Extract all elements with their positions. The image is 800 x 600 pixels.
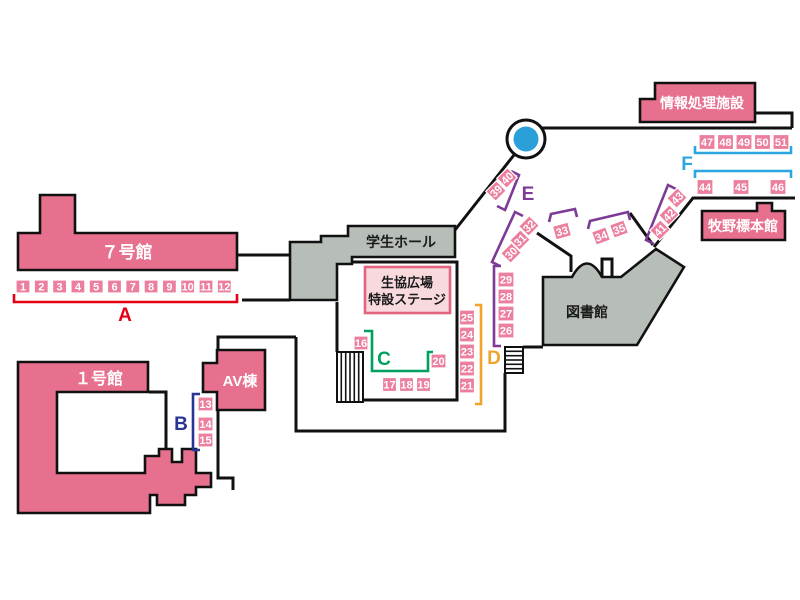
bracket-d — [475, 305, 481, 404]
coop-stage-label-1: 生協広場 — [381, 275, 433, 290]
booth-6: 6 — [108, 280, 122, 294]
group-label-a: A — [118, 305, 132, 326]
building-1-label: １号館 — [75, 369, 123, 388]
booth-16-number: 16 — [355, 338, 367, 350]
pond-icon — [514, 127, 539, 152]
booth-4: 4 — [71, 280, 85, 294]
bracket-a — [14, 294, 237, 302]
booth-51-number: 51 — [775, 137, 787, 149]
booth-24: 24 — [460, 327, 475, 342]
booth-6-number: 6 — [111, 282, 117, 294]
booth-10: 10 — [181, 280, 195, 294]
path-library-notch — [602, 259, 612, 277]
booth-3: 3 — [53, 280, 67, 294]
booth-29-number: 29 — [500, 275, 512, 287]
booth-27: 27 — [498, 306, 514, 321]
booth-48-number: 48 — [719, 137, 731, 149]
booth-11-number: 11 — [200, 282, 212, 294]
booth-23: 23 — [460, 344, 475, 359]
booth-33: 33 — [552, 222, 571, 240]
booth-7-number: 7 — [130, 282, 136, 294]
av-building-label: AV棟 — [223, 372, 259, 390]
booth-12-number: 12 — [218, 282, 230, 294]
booth-18-number: 18 — [400, 380, 412, 392]
booth-13: 13 — [198, 397, 213, 411]
booth-16: 16 — [354, 336, 368, 350]
booth-19-number: 19 — [417, 380, 429, 392]
booth-11: 11 — [199, 280, 213, 294]
booth-22: 22 — [460, 361, 475, 376]
booth-28: 28 — [498, 289, 514, 304]
booth-47-number: 47 — [701, 137, 713, 149]
booth-3-number: 3 — [57, 282, 63, 294]
booth-15: 15 — [198, 433, 213, 447]
booth-5-number: 5 — [93, 282, 99, 294]
booth-27-number: 27 — [500, 309, 512, 321]
bracket-f-44-46 — [695, 171, 791, 178]
booth-13-number: 13 — [199, 399, 211, 411]
booth-24-number: 24 — [461, 330, 474, 342]
booth-25-number: 25 — [461, 313, 473, 325]
group-label-b: B — [174, 414, 188, 435]
booth-17-number: 17 — [383, 380, 395, 392]
student-hall-label: 学生ホール — [366, 234, 436, 250]
campus-map-svg: ７号館 １号館 AV棟 学生ホール 図書館 情報処理施設 牧野標本館 生協広場 … — [0, 0, 800, 600]
booth-7: 7 — [126, 280, 140, 294]
booth-49-number: 49 — [738, 137, 750, 149]
booth-14-number: 14 — [199, 419, 212, 431]
library-label: 図書館 — [566, 304, 608, 320]
walkway-paths — [149, 113, 795, 490]
booth-8-number: 8 — [148, 282, 154, 294]
booth-17: 17 — [383, 378, 397, 392]
booth-28-number: 28 — [500, 292, 512, 304]
booth-2: 2 — [34, 280, 48, 294]
booth-1-number: 1 — [20, 282, 26, 294]
booth-25: 25 — [460, 310, 475, 325]
booth-23-number: 23 — [461, 347, 473, 359]
booth-26-number: 26 — [500, 326, 512, 338]
building-7-label: ７号館 — [102, 242, 153, 262]
booth-10-number: 10 — [182, 282, 194, 294]
booth-29: 29 — [498, 272, 514, 287]
booth-44: 44 — [697, 180, 713, 195]
group-label-f: F — [681, 154, 693, 175]
booth-46: 46 — [770, 180, 786, 195]
info-processing-label: 情報処理施設 — [660, 95, 745, 111]
pond-marker — [507, 120, 545, 158]
group-label-e: E — [522, 184, 535, 205]
booth-18: 18 — [400, 378, 414, 392]
booth-26: 26 — [498, 323, 514, 338]
booth-45: 45 — [733, 180, 749, 195]
coop-stage: 生協広場 特設ステージ — [365, 267, 450, 313]
makino-herbarium-label: 牧野標本館 — [708, 218, 778, 234]
path-library-entry-left — [537, 233, 571, 272]
booth-50: 50 — [755, 135, 771, 150]
path-av-top — [218, 337, 296, 350]
booth-2-number: 2 — [38, 282, 44, 294]
booth-49: 49 — [736, 135, 752, 150]
booth-9: 9 — [162, 280, 176, 294]
group-label-c: C — [377, 349, 391, 370]
booth-9-number: 9 — [166, 282, 172, 294]
booth-15-number: 15 — [199, 435, 211, 447]
booth-46-number: 46 — [772, 182, 784, 194]
booth-45-number: 45 — [735, 182, 747, 194]
booth-50-number: 50 — [756, 137, 768, 149]
booth-1: 1 — [16, 280, 30, 294]
booth-8: 8 — [144, 280, 158, 294]
booth-44-number: 44 — [699, 182, 712, 194]
booth-12: 12 — [217, 280, 231, 294]
booth-21-number: 21 — [461, 381, 473, 393]
booth-19: 19 — [417, 378, 431, 392]
group-label-d: D — [487, 348, 501, 369]
booth-47: 47 — [699, 135, 715, 150]
booth-20: 20 — [431, 354, 446, 368]
booth-21: 21 — [460, 378, 475, 393]
booth-4-number: 4 — [75, 282, 82, 294]
booth-48: 48 — [718, 135, 734, 150]
path-bldg1-step — [149, 392, 166, 455]
booth-22-number: 22 — [461, 364, 473, 376]
campus-map: ７号館 １号館 AV棟 学生ホール 図書館 情報処理施設 牧野標本館 生協広場 … — [0, 0, 800, 600]
booth-5: 5 — [89, 280, 103, 294]
path-av-bottom — [218, 410, 233, 490]
bracket-33 — [549, 209, 577, 222]
booth-51: 51 — [773, 135, 789, 150]
booth-20-number: 20 — [432, 356, 444, 368]
booth-35: 35 — [610, 220, 629, 238]
booth-34: 34 — [592, 227, 611, 245]
bracket-c — [364, 331, 433, 371]
booth-14: 14 — [198, 417, 213, 431]
coop-stage-label-2: 特設ステージ — [368, 292, 446, 307]
